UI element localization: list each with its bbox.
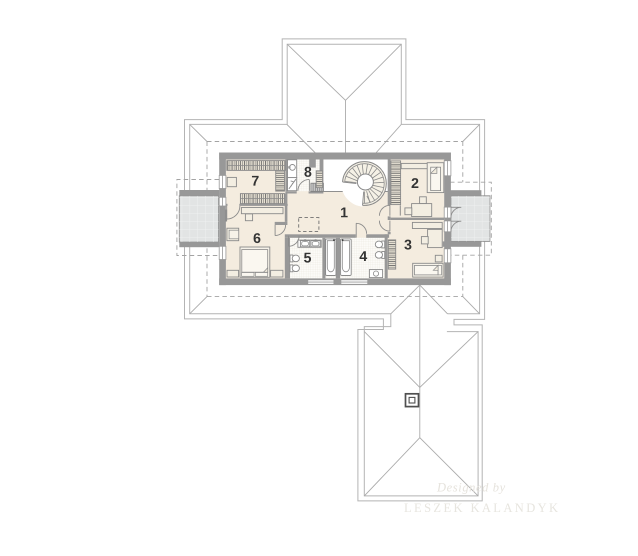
svg-text:Designed by: Designed by bbox=[436, 481, 506, 495]
svg-text:LESZEK KALANDYK: LESZEK KALANDYK bbox=[404, 501, 560, 515]
